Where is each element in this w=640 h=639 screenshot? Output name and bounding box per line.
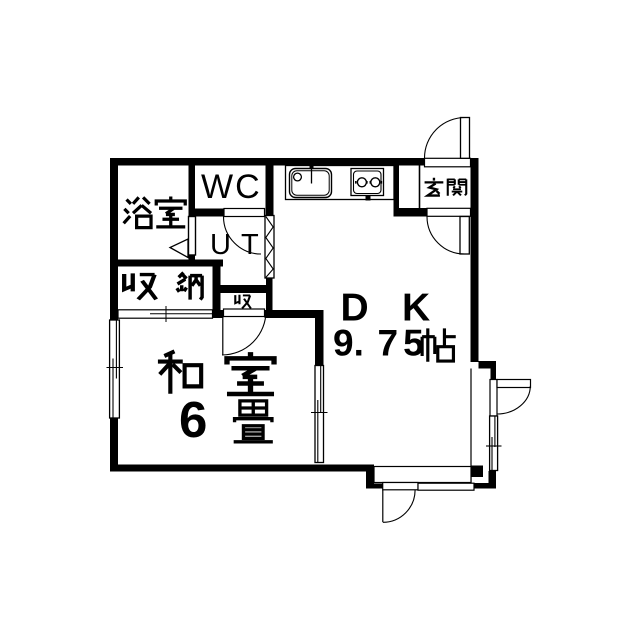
svg-text:UT: UT bbox=[210, 229, 269, 261]
svg-text:9.: 9. bbox=[333, 323, 364, 364]
svg-text:WC: WC bbox=[201, 168, 262, 206]
svg-text:6: 6 bbox=[179, 391, 207, 448]
